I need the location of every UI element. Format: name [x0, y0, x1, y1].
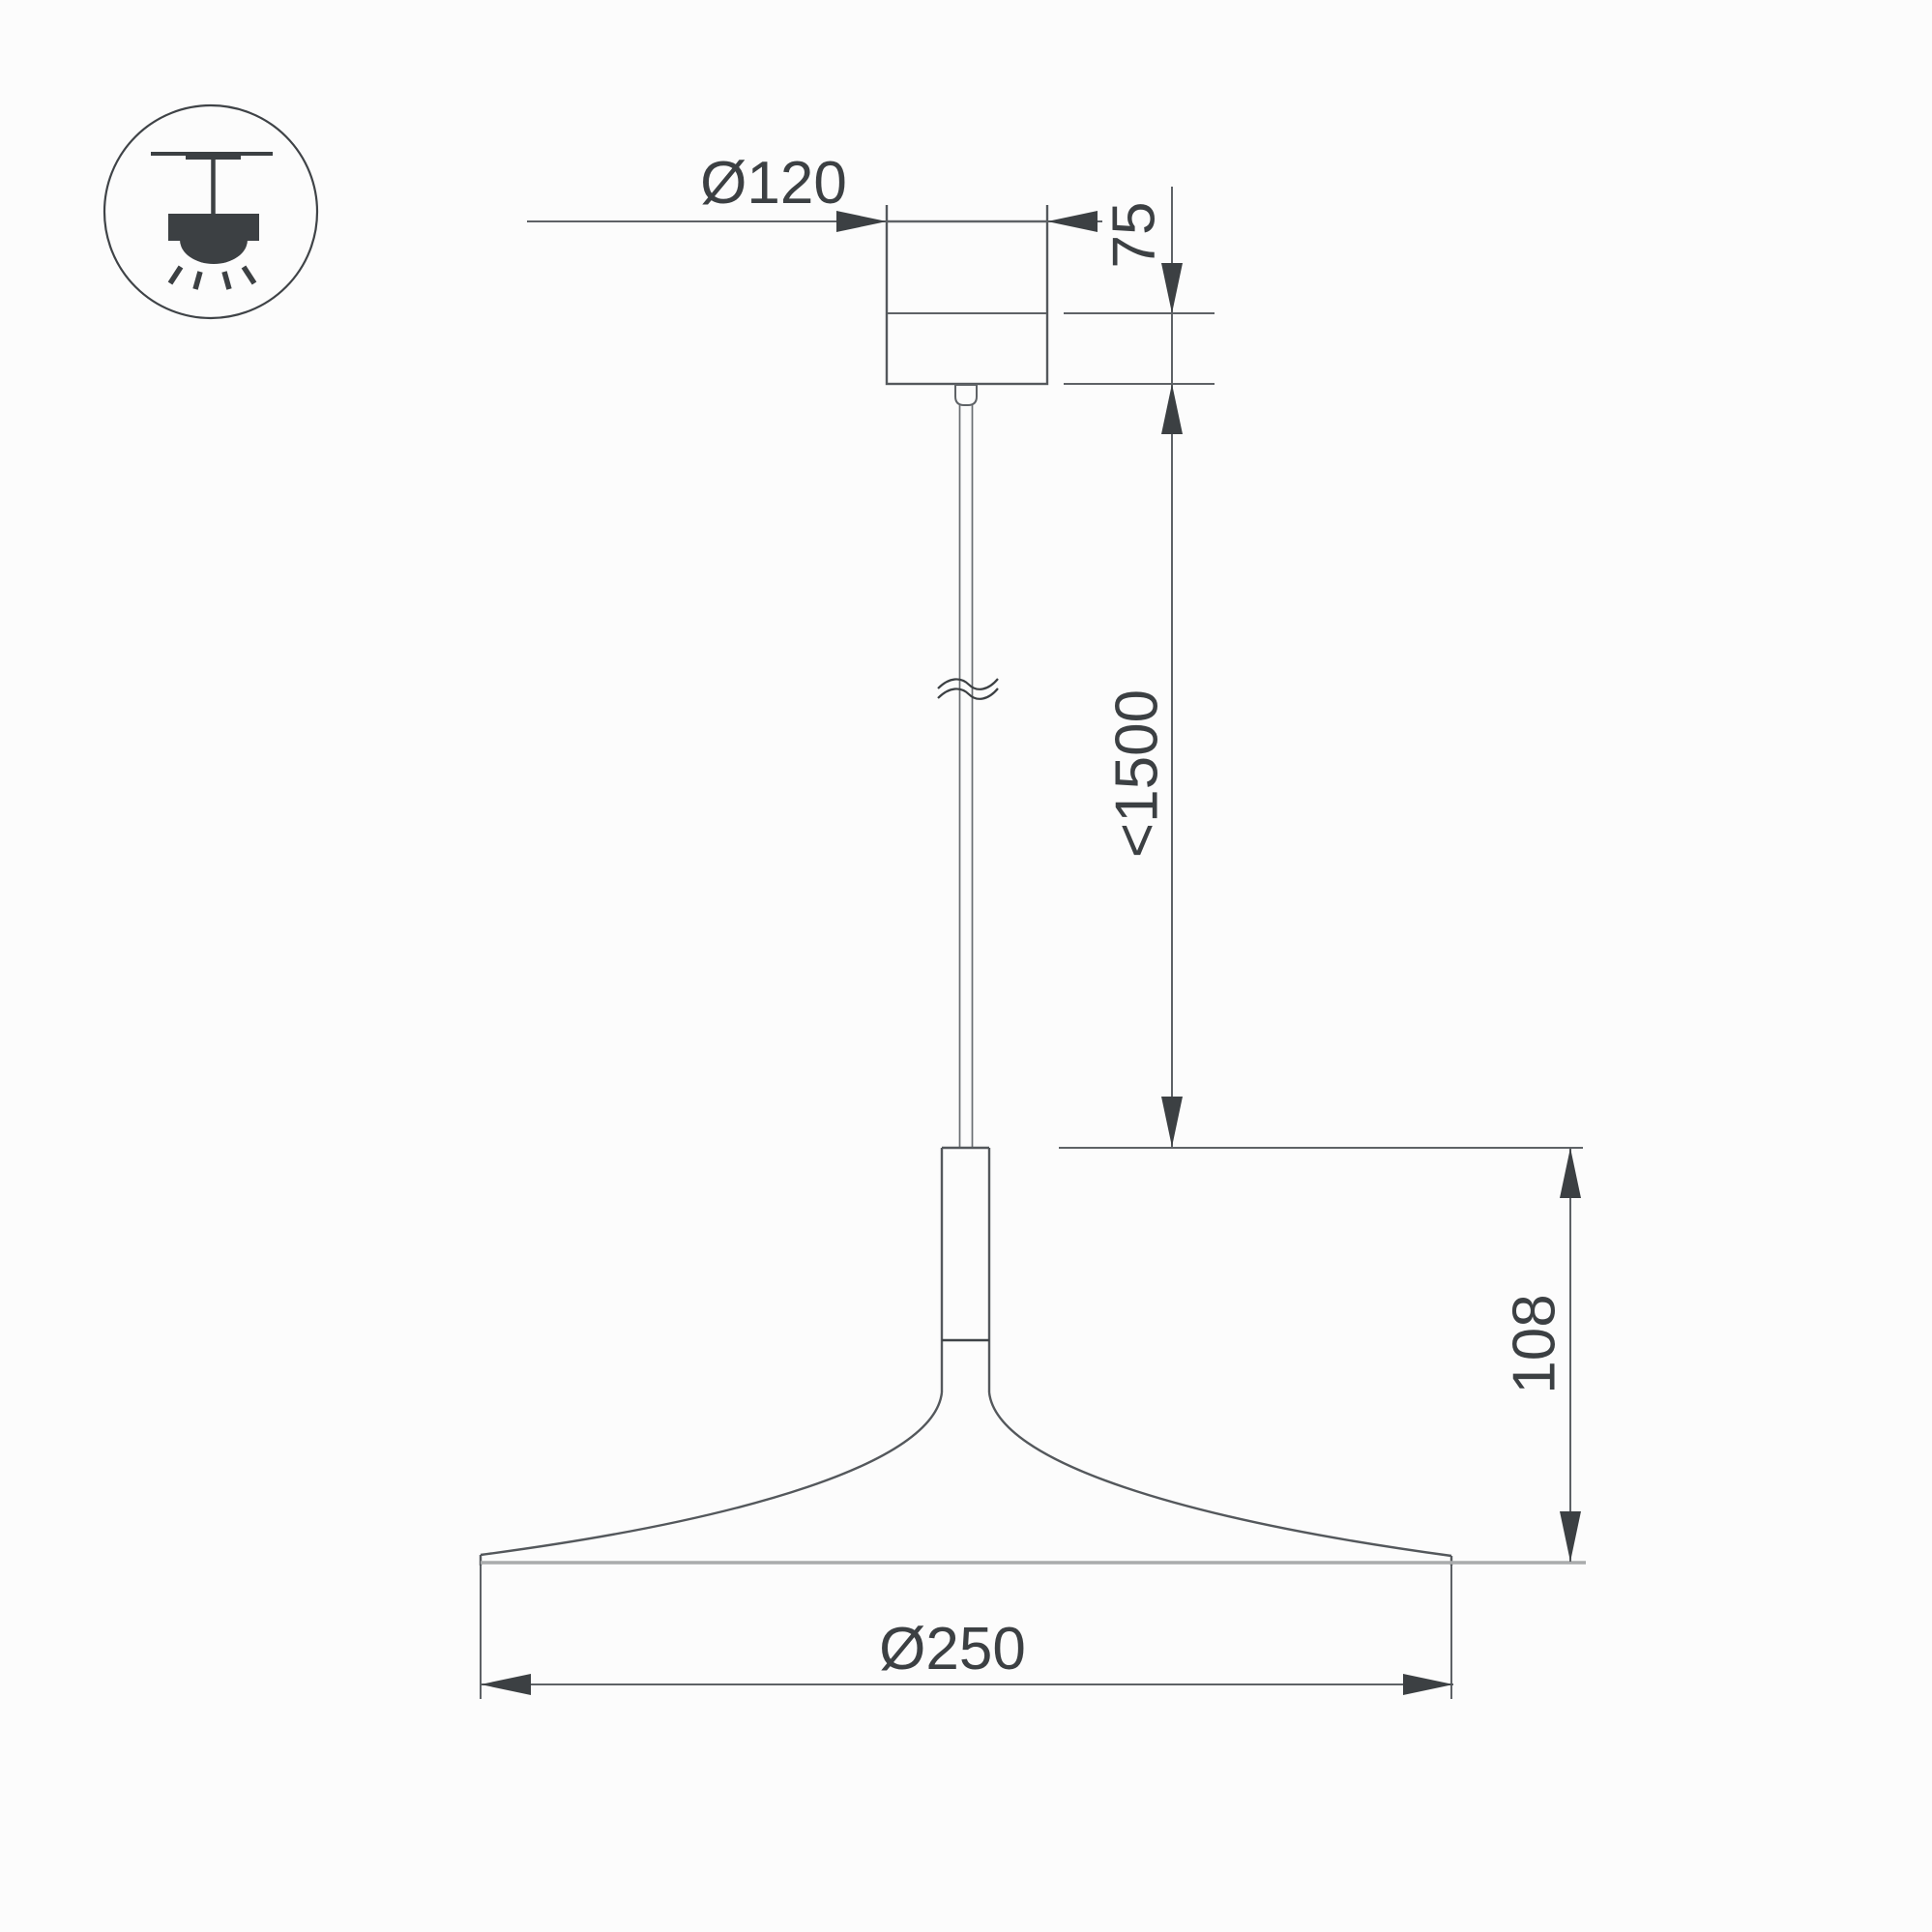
- dimension-shade-height: 108: [1502, 1148, 1581, 1562]
- suspension-length-label: <1500: [1104, 689, 1171, 858]
- shade-height-label: 108: [1502, 1294, 1568, 1393]
- icon-light-rays: [170, 267, 254, 289]
- shade-diameter-label: Ø250: [879, 1616, 1026, 1683]
- pendant-ceiling-mount-icon: [104, 105, 317, 318]
- shade-flare-left: [481, 1392, 942, 1555]
- canopy: [887, 205, 1047, 405]
- dimension-suspension-length: <1500: [1059, 384, 1583, 1148]
- dimension-canopy-diameter: Ø120: [527, 150, 1102, 232]
- icon-lamp-body: [168, 214, 259, 241]
- canopy-body: [887, 221, 1047, 384]
- lampshade: [481, 1148, 1586, 1566]
- drawing-svg: Ø120 75 <1500 108: [0, 0, 1932, 1932]
- canopy-diameter-label: Ø120: [700, 150, 847, 217]
- cable-break-symbol: [938, 679, 998, 699]
- canopy-height-label: 75: [1101, 202, 1168, 269]
- icon-lamp-dome: [180, 240, 248, 264]
- suspension-cable: [960, 405, 973, 1147]
- cable-grip: [955, 385, 977, 405]
- technical-drawing-canvas: Ø120 75 <1500 108: [0, 0, 1932, 1932]
- icon-circle: [104, 105, 317, 318]
- dimension-shade-diameter: Ø250: [481, 1566, 1453, 1699]
- shade-flare-right: [989, 1392, 1451, 1556]
